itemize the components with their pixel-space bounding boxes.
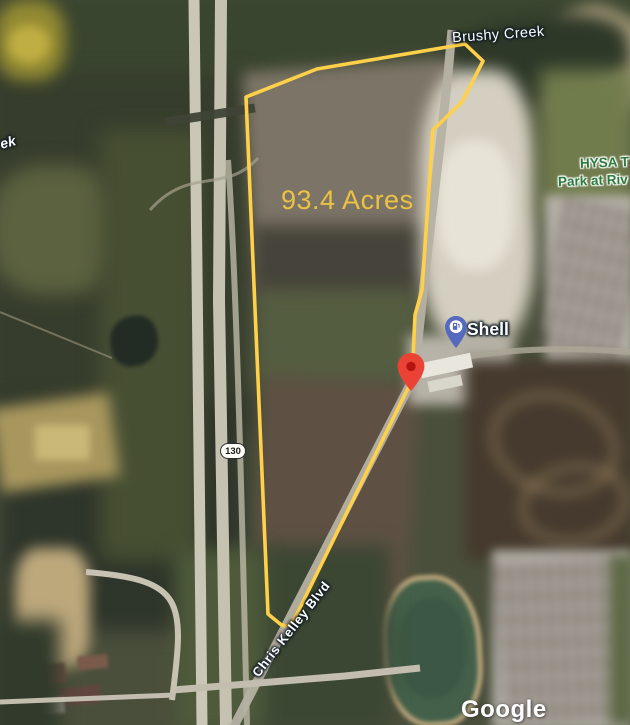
satellite-map-canvas[interactable]: Brushy Creek ek 93.4 Acres Chris Kelley …: [0, 0, 630, 725]
service-road-curve: [150, 158, 258, 210]
highway-130-shield: 130: [220, 443, 246, 459]
google-watermark[interactable]: Google: [461, 696, 547, 724]
highway-overpass-bridge: [165, 108, 255, 122]
gas-station-pin[interactable]: [445, 316, 467, 353]
highway-sh130-northbound: [194, 0, 202, 725]
location-pin-icon: [397, 353, 425, 391]
south-cross-road: [173, 668, 420, 690]
property-location-pin[interactable]: [397, 353, 425, 396]
park-label-line1: HYSA T: [580, 154, 630, 171]
gas-station-canopy: [427, 375, 463, 393]
map-vector-overlay: [0, 0, 630, 725]
powerline-cut-west: [0, 312, 112, 358]
roads: [0, 0, 630, 725]
southwest-access-road: [0, 695, 175, 702]
park-label-line2: Park at Riv: [558, 172, 628, 189]
shell-station-label[interactable]: Shell: [467, 319, 509, 340]
gas-pump-pin-icon: [445, 316, 467, 348]
parcel-acreage-label: 93.4 Acres: [281, 185, 414, 216]
gas-station-building: [419, 353, 473, 378]
southwest-loop-road: [86, 572, 178, 700]
